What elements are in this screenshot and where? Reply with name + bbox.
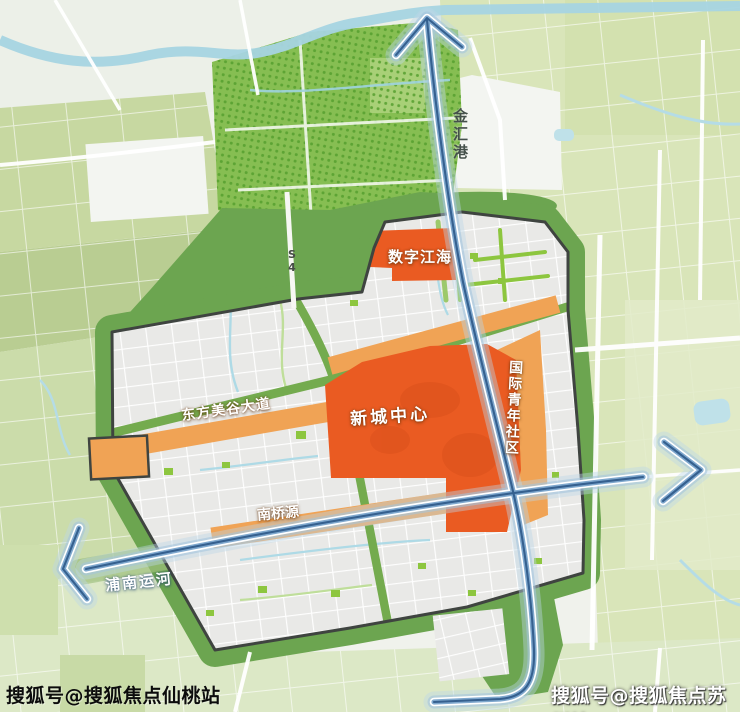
west-orange-plot (89, 436, 149, 480)
watermark-bottom-left: 搜狐号@搜狐焦点仙桃站 (6, 681, 221, 708)
planning-map: 金汇港 数字江海 新城中心 国际青年社区 东方美谷大道 南桥源 浦南运河 S 4… (0, 0, 740, 712)
watermark-bottom-right: 搜狐号@搜狐焦点苏州站 (551, 681, 740, 712)
map-canvas (0, 0, 740, 712)
